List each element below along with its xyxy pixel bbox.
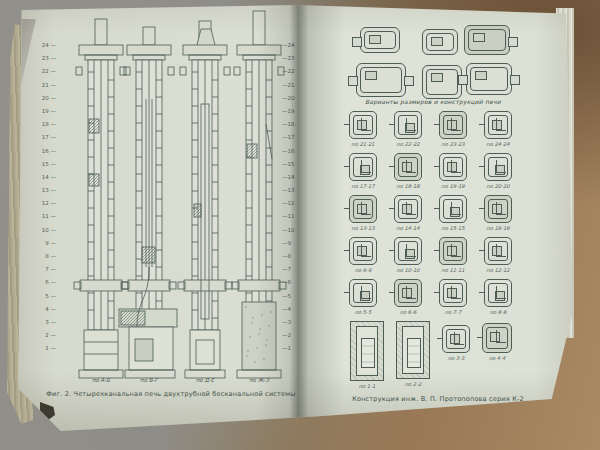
section-label: по 14-14 [396, 225, 419, 231]
plan-section-drawing [439, 153, 467, 181]
right-figure-caption: Конструкция инж. В. П. Протопопова серия… [328, 395, 548, 403]
section-label: по 20-20 [486, 183, 509, 189]
vertical-section: по 1-1 [350, 321, 384, 389]
grid-row: по 17-17 по 18-18 по 19-19 по 20-20 [348, 153, 513, 189]
plan-section: по 5-5 [348, 279, 378, 315]
plan-section-drawing [349, 279, 377, 307]
plan-section: по 21-21 [348, 111, 378, 147]
plan-variant-drawing [422, 65, 462, 99]
vertical-section-drawing [396, 321, 430, 379]
plan-section: по 18-18 [393, 153, 423, 189]
section-label: по 3-3 [448, 355, 465, 361]
plan-section: по 14-14 [393, 195, 423, 231]
plan-section-drawing [482, 323, 512, 353]
plan-section: по 24-24 [483, 111, 513, 147]
grid-row: по 21-21 по 22-22 по 23-23 по 24-24 [348, 111, 513, 147]
section-label: по 9-9 [355, 267, 372, 273]
grid-row: по 5-5 по 6-6 по 7-7 по 8-8 [348, 279, 513, 315]
level-number: 15 [32, 158, 56, 171]
section-cut-label: по Д-Е [182, 377, 228, 383]
level-number: 24 [32, 39, 56, 52]
level-number: 9 [32, 237, 56, 250]
section-label: по 18-18 [396, 183, 419, 189]
level-number: 11 [32, 210, 56, 223]
plan-section-drawing [484, 279, 512, 307]
plan-section-drawing [439, 279, 467, 307]
section-label: по 13-13 [351, 225, 374, 231]
level-number: 19 [32, 105, 56, 118]
plan-section: по 22-22 [393, 111, 423, 147]
plan-section: по 16-16 [483, 195, 513, 231]
plan-section-drawing [394, 153, 422, 181]
level-number: 7 [32, 263, 56, 276]
section-label: по 23-23 [441, 141, 464, 147]
plan-variant-drawing [466, 63, 512, 95]
plan-section-drawing [439, 111, 467, 139]
section-label: по 19-19 [441, 183, 464, 189]
stove-elevation-column [232, 11, 286, 378]
plan-section-drawing [349, 111, 377, 139]
level-number: 16 [32, 145, 56, 158]
plan-section: по 3-3 [442, 325, 470, 361]
variants-caption: Варианты размеров и конструкций печи [338, 98, 528, 105]
plan-section-drawing [394, 195, 422, 223]
section-label: по 1-1 [359, 383, 376, 389]
left-page: 242322212019181716151413121110987654321 … [16, 5, 298, 431]
stove-elevation-column [178, 21, 232, 378]
section-cut-label: по А-Б [78, 377, 124, 383]
stove-elevation-svg [56, 9, 292, 381]
section-label: по 5-5 [355, 309, 372, 315]
level-number: 18 [32, 118, 56, 131]
section-label: по 11-11 [441, 267, 464, 273]
section-label: по 10-10 [396, 267, 419, 273]
section-label: по 7-7 [445, 309, 462, 315]
level-number: 6 [32, 276, 56, 289]
section-label: по 15-15 [441, 225, 464, 231]
grid-row: по 9-9 по 10-10 по 11-11 по 12-12 [348, 237, 513, 273]
section-label: по 24-24 [486, 141, 509, 147]
plan-section-drawing [484, 153, 512, 181]
section-label: по 16-16 [486, 225, 509, 231]
plan-section-drawing [349, 237, 377, 265]
section-label: по 12-12 [486, 267, 509, 273]
plan-section: по 23-23 [438, 111, 468, 147]
section-label: по 2-2 [405, 381, 422, 387]
plan-section-drawing [442, 325, 470, 353]
plan-variant-drawing [356, 63, 406, 97]
bottom-sections-row: по 1-1 по 2-2 по 3-3 по 4-4 [350, 321, 512, 389]
plan-section: по 8-8 [483, 279, 513, 315]
level-number: 17 [32, 131, 56, 144]
level-number: 1 [32, 342, 56, 355]
plan-section-drawing [394, 279, 422, 307]
plan-section-drawing [484, 195, 512, 223]
right-page: Варианты размеров и конструкций печи по … [298, 5, 574, 431]
left-figure-caption: Фиг. 2. Четырехканальная печь двухтрубно… [46, 390, 296, 398]
level-number: 8 [32, 250, 56, 263]
plan-section: по 13-13 [348, 195, 378, 231]
section-label: по 21-21 [351, 141, 374, 147]
level-number: 20 [32, 92, 56, 105]
plan-section-drawing [349, 153, 377, 181]
section-label: по 4-4 [489, 355, 506, 361]
plan-section: по 20-20 [483, 153, 513, 189]
vertical-section-drawing [350, 321, 384, 381]
plan-section: по 19-19 [438, 153, 468, 189]
level-number: 10 [32, 224, 56, 237]
section-label: по 6-6 [400, 309, 417, 315]
plan-section-drawing [439, 195, 467, 223]
plan-section: по 7-7 [438, 279, 468, 315]
section-label: по 22-22 [396, 141, 419, 147]
level-number: 4 [32, 303, 56, 316]
level-number: 21 [32, 79, 56, 92]
plan-section: по 17-17 [348, 153, 378, 189]
section-label: по 17-17 [351, 183, 374, 189]
plan-section-drawing [394, 237, 422, 265]
vertical-section: по 2-2 [396, 321, 430, 387]
plan-section-drawing [349, 195, 377, 223]
plan-section: по 12-12 [483, 237, 513, 273]
plan-section: по 4-4 [482, 323, 512, 361]
plan-section: по 15-15 [438, 195, 468, 231]
plan-section: по 11-11 [438, 237, 468, 273]
plan-section: по 6-6 [393, 279, 423, 315]
section-cut-label: по Ж-З [236, 377, 282, 383]
plan-section-drawing [439, 237, 467, 265]
section-label: по 8-8 [490, 309, 507, 315]
level-number: 2 [32, 329, 56, 342]
plan-section-drawing [484, 111, 512, 139]
left-margin-numbers: 242322212019181716151413121110987654321 [32, 39, 56, 356]
level-number: 13 [32, 184, 56, 197]
level-number: 22 [32, 65, 56, 78]
level-number: 12 [32, 197, 56, 210]
level-number: 14 [32, 171, 56, 184]
plan-variant-drawing [360, 27, 400, 53]
section-grid: по 21-21 по 22-22 по 23-23 по 24-24 [348, 111, 513, 321]
plan-section: по 10-10 [393, 237, 423, 273]
plan-section-drawing [394, 111, 422, 139]
level-number: 3 [32, 316, 56, 329]
open-book: 242322212019181716151413121110987654321 … [16, 5, 574, 431]
level-number: 5 [32, 290, 56, 303]
stove-elevation-column [119, 27, 177, 378]
plan-section-drawing [484, 237, 512, 265]
plan-variant-drawing [422, 29, 458, 55]
section-cut-label: по В-Г [126, 377, 172, 383]
grid-row: по 13-13 по 14-14 по 15-15 по 16-16 [348, 195, 513, 231]
plan-section: по 9-9 [348, 237, 378, 273]
table-surface: 242322212019181716151413121110987654321 … [0, 0, 600, 450]
level-number: 23 [32, 52, 56, 65]
plan-variant-drawing [464, 25, 510, 55]
